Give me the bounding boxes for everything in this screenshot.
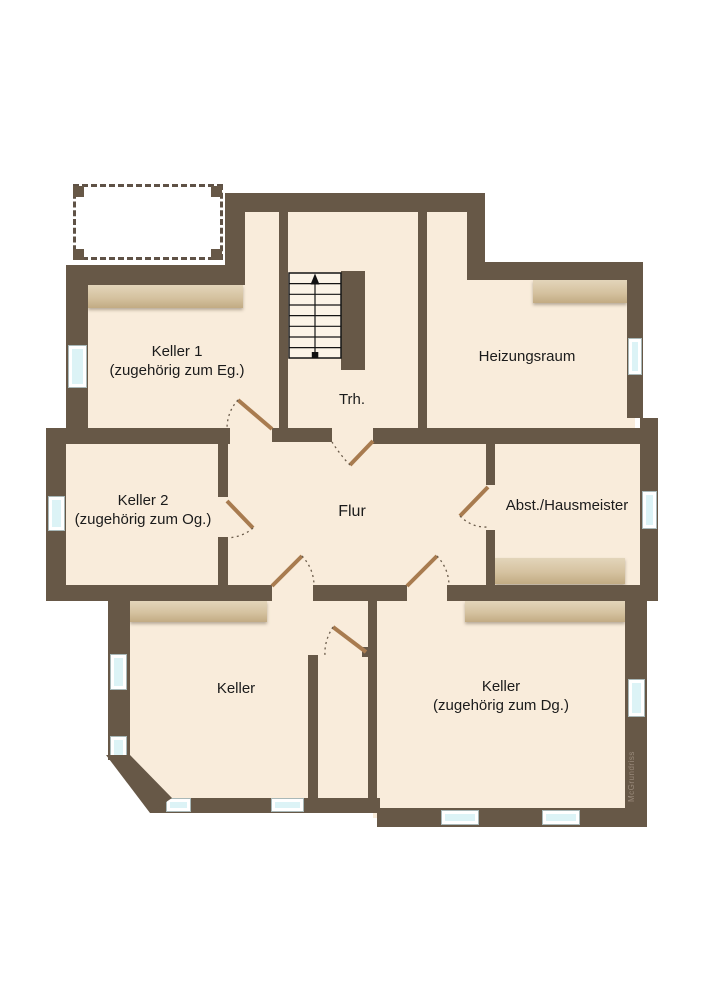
- wall: [486, 444, 495, 485]
- wall: [66, 265, 245, 285]
- floor-keller: [115, 592, 315, 806]
- room-label-keller: Keller: [176, 679, 296, 698]
- window: [542, 810, 580, 825]
- room-label-keller1: Keller 1 (zugehörig zum Eg.): [92, 342, 262, 380]
- room-name: Flur: [312, 502, 392, 521]
- wall: [279, 212, 288, 428]
- window: [628, 338, 642, 375]
- wall: [308, 655, 318, 798]
- lightwell-corner-post: [211, 249, 222, 260]
- lightwell-dashed-outline: [73, 184, 223, 260]
- wall: [373, 428, 658, 444]
- room-name: Trh.: [320, 390, 384, 409]
- room-label-trh: Trh.: [320, 390, 384, 409]
- room-name: Heizungsraum: [447, 347, 607, 366]
- wall: [418, 212, 427, 428]
- shelf-keller: [130, 601, 267, 622]
- room-label-abst: Abst./Hausmeister: [484, 496, 650, 515]
- room-sublabel: (zugehörig zum Eg.): [92, 361, 262, 380]
- wall: [218, 537, 228, 585]
- window: [271, 798, 304, 812]
- watermark: McGrundriss: [627, 750, 636, 802]
- wall-door-stub: [362, 647, 377, 657]
- room-name: Keller 1: [92, 342, 262, 361]
- room-name: Abst./Hausmeister: [484, 496, 650, 515]
- room-label-heizungsraum: Heizungsraum: [447, 347, 607, 366]
- wall: [225, 212, 245, 285]
- shelf-abst: [495, 558, 625, 584]
- wall: [486, 530, 495, 585]
- window: [166, 798, 191, 812]
- window: [110, 736, 127, 760]
- wall: [368, 597, 377, 808]
- lightwell-corner-post: [211, 186, 222, 197]
- room-label-flur: Flur: [312, 502, 392, 521]
- wall: [377, 808, 647, 827]
- lightwell-corner-post: [73, 186, 84, 197]
- shelf-keller1: [88, 285, 243, 308]
- wall: [313, 585, 407, 601]
- window: [628, 679, 645, 717]
- wall: [272, 428, 332, 442]
- window: [68, 345, 87, 388]
- wall-stair-side: [341, 271, 365, 370]
- wall: [467, 262, 643, 280]
- wall: [46, 428, 230, 444]
- wall: [218, 444, 228, 497]
- window: [110, 654, 127, 690]
- room-sublabel: (zugehörig zum Og.): [58, 510, 228, 529]
- shelf-heizungsraum: [533, 280, 627, 303]
- wall: [46, 585, 272, 601]
- room-name: Keller: [176, 679, 296, 698]
- wall: [467, 212, 485, 262]
- room-label-keller-dg: Keller (zugehörig zum Dg.): [411, 677, 591, 715]
- lightwell-corner-post: [73, 249, 84, 260]
- room-label-keller2: Keller 2 (zugehörig zum Og.): [58, 491, 228, 529]
- shelf-keller-dg: [465, 601, 625, 622]
- room-name: Keller 2: [58, 491, 228, 510]
- room-sublabel: (zugehörig zum Dg.): [411, 696, 591, 715]
- room-name: Keller: [411, 677, 591, 696]
- floorplan-basement: Keller 1 (zugehörig zum Eg.) Trh. Heizun…: [0, 0, 706, 1000]
- floor-niche: [313, 592, 373, 804]
- wall: [225, 193, 485, 212]
- window: [441, 810, 479, 825]
